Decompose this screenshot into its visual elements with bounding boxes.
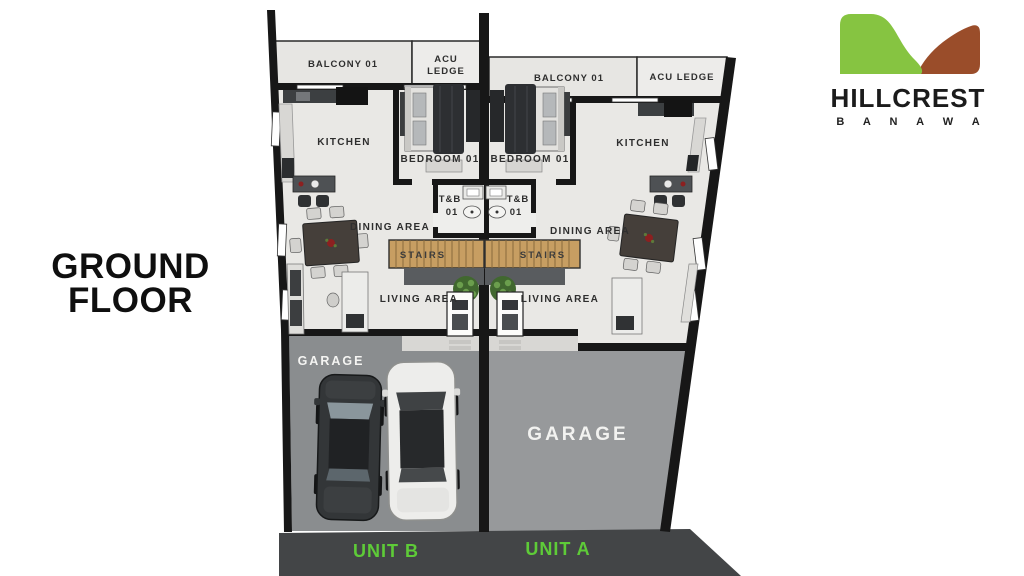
unitb-tnb-label-line2: 01 bbox=[446, 207, 459, 218]
unitb-acu-label-line1: ACU bbox=[434, 54, 458, 65]
unitb-living-label: LIVING AREA bbox=[380, 294, 458, 305]
unita-kitchen-label: KITCHEN bbox=[616, 138, 670, 149]
unita-garage-wall bbox=[578, 343, 689, 351]
unita-bedroom-label: BEDROOM 01 bbox=[490, 154, 569, 165]
unita-stairs-label: STAIRS bbox=[520, 250, 566, 261]
unitb-tnb-bottom-wall bbox=[433, 233, 484, 238]
unitb-bedroom-lower-wall bbox=[393, 179, 484, 185]
floor-plan-drawing: BALCONY 01 ACU LEDGE BALCONY 01 ACU LEDG… bbox=[0, 0, 1024, 576]
unitb-stairs-label: STAIRS bbox=[400, 250, 446, 261]
unitb-balcony-label: BALCONY 01 bbox=[308, 59, 378, 70]
unitb-tnb-label-line1: T&B bbox=[439, 194, 462, 205]
unitb-bedroom-wall bbox=[393, 90, 399, 182]
garage-front-wall bbox=[281, 329, 578, 336]
unita-tnb-wall bbox=[531, 185, 536, 237]
white-car bbox=[382, 361, 463, 520]
unit-b-label: UNIT B bbox=[353, 541, 419, 561]
unita-tnb-bottom-wall bbox=[484, 233, 536, 238]
unitb-dining-label: DINING AREA bbox=[350, 222, 430, 233]
unita-bathroom bbox=[486, 185, 531, 233]
unita-tnb-label-line2: 01 bbox=[510, 207, 523, 218]
unitb-tnb-wall bbox=[433, 185, 438, 237]
floor-plan-page: GROUND FLOOR HILLCREST B A N A W A bbox=[0, 0, 1024, 576]
unitb-bedroom-label: BEDROOM 01 bbox=[400, 154, 479, 165]
unit-a-label: UNIT A bbox=[525, 539, 590, 559]
unita-garage-label: GARAGE bbox=[527, 424, 628, 445]
unita-bedroom-wall bbox=[570, 103, 576, 182]
unitb-acu-label-line2: LEDGE bbox=[427, 66, 465, 77]
dark-car bbox=[311, 374, 387, 521]
unita-balcony-label: BALCONY 01 bbox=[534, 73, 604, 84]
unitb-kitchen-label: KITCHEN bbox=[317, 137, 371, 148]
unitb-garage-label: GARAGE bbox=[298, 354, 365, 368]
unita-dining-label: DINING AREA bbox=[550, 226, 630, 237]
unita-living-label: LIVING AREA bbox=[521, 294, 599, 305]
unita-bedroom-lower-wall bbox=[484, 179, 576, 185]
unita-acu-label: ACU LEDGE bbox=[650, 72, 715, 83]
unita-tnb-label-line1: T&B bbox=[507, 194, 530, 205]
